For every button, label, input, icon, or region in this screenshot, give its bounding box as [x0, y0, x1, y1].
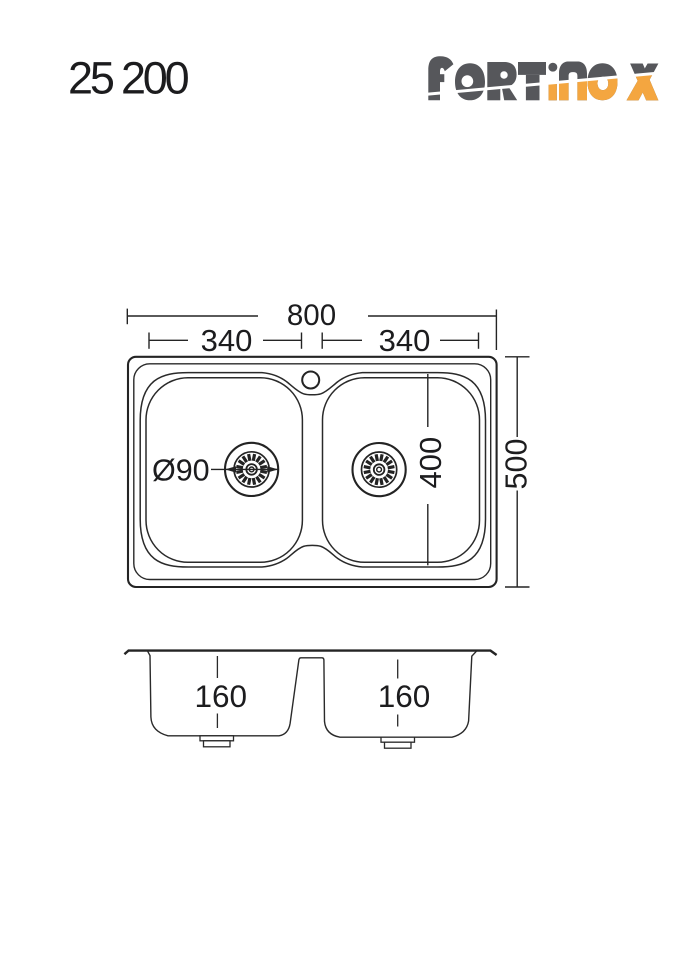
- svg-text:500: 500: [499, 439, 533, 490]
- svg-text:Ø90: Ø90: [152, 454, 210, 488]
- svg-text:160: 160: [378, 678, 431, 714]
- svg-text:25 200: 25 200: [68, 53, 189, 104]
- svg-text:400: 400: [413, 437, 448, 489]
- svg-text:800: 800: [287, 299, 336, 332]
- svg-text:160: 160: [195, 678, 248, 714]
- svg-text:340: 340: [379, 323, 431, 358]
- svg-text:340: 340: [201, 323, 253, 358]
